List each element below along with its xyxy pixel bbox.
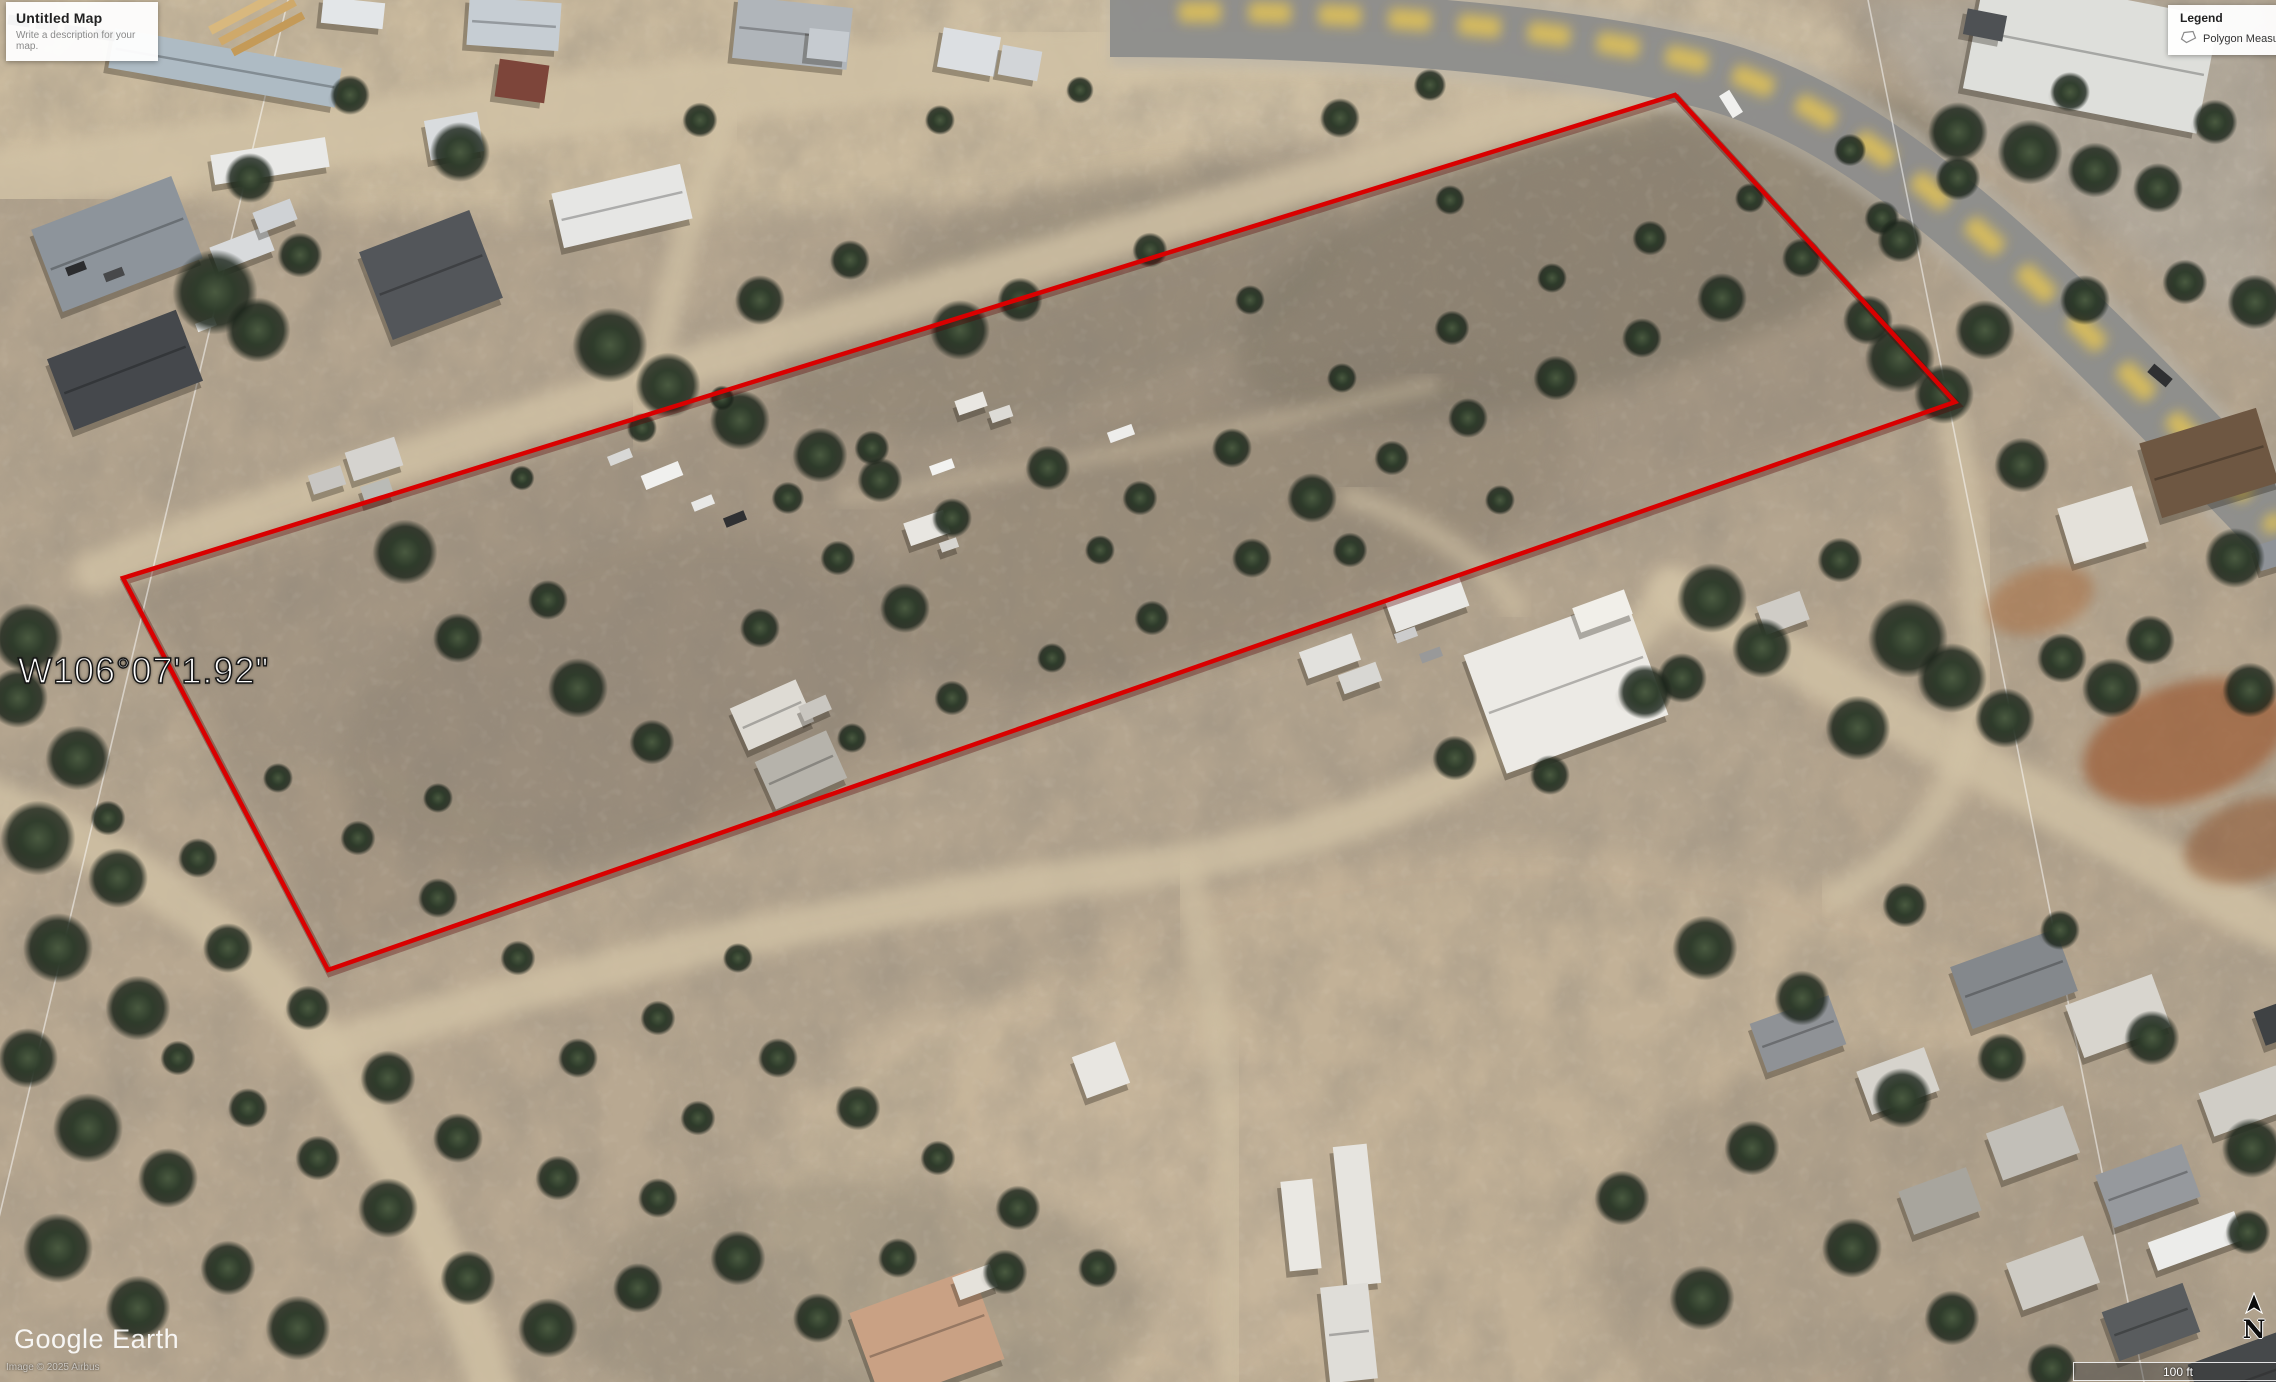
google-earth-viewport[interactable]: Untitled Map Write a description for you… xyxy=(0,0,2276,1382)
google-earth-watermark: Google Earth xyxy=(14,1324,179,1355)
coordinate-label: W106°07'1.92" xyxy=(18,650,269,692)
map-title[interactable]: Untitled Map xyxy=(16,10,148,26)
satellite-imagery[interactable] xyxy=(0,0,2276,1382)
polygon-outline-icon xyxy=(2180,30,2197,47)
north-indicator[interactable]: N xyxy=(2236,1292,2272,1344)
legend-item-polygon-measure[interactable]: Polygon Measure xyxy=(2180,30,2276,47)
imagery-attribution: Image © 2025 Airbus xyxy=(6,1362,100,1373)
map-title-panel[interactable]: Untitled Map Write a description for you… xyxy=(6,2,158,61)
north-arrow-icon xyxy=(2240,1292,2268,1314)
legend-panel: Legend Polygon Measure xyxy=(2168,5,2276,55)
north-label: N xyxy=(2236,1315,2272,1344)
scale-label: 100 ft xyxy=(2163,1365,2193,1379)
scale-bar: 100 ft xyxy=(2073,1362,2276,1381)
legend-item-label: Polygon Measure xyxy=(2203,33,2276,45)
map-description-placeholder[interactable]: Write a description for your map. xyxy=(16,30,148,52)
legend-title: Legend xyxy=(2180,11,2276,25)
